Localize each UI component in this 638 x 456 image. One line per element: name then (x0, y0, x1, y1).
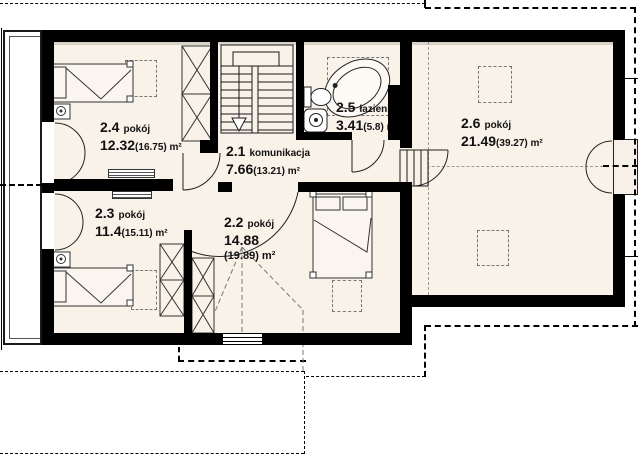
wall-between-24-23 (54, 179, 173, 191)
door-room24 (183, 153, 220, 190)
wardrobe-room24 (182, 46, 212, 141)
room-label-2-4: 2.4pokój 12.32(16.75) m² (100, 119, 182, 155)
bed-room23 (43, 265, 133, 306)
room-area: 21.49 (461, 133, 496, 149)
sink-drain-icon (315, 119, 318, 122)
room-area-line: 14.88(19.89) m² (224, 232, 275, 262)
wall-left-lower (42, 249, 54, 345)
room-name: pokój (247, 219, 274, 230)
balcony-door-room23-leaf1 (55, 194, 83, 222)
pillow-left (316, 197, 340, 210)
wall-bottom-west (42, 333, 222, 345)
wardrobe-room22 (192, 258, 214, 333)
room-title-line: 2.4pokój (100, 119, 182, 137)
balcony-door-room26-leaf1 (586, 141, 612, 167)
floor-plan: 2.1komunikacja 7.66(13.21) m² 2.2pokój 1… (0, 0, 638, 456)
room-number: 2.2 (224, 214, 243, 230)
room-area-note: (16.75) m² (135, 142, 182, 153)
wardrobe-room23 (160, 244, 184, 316)
wall-top (42, 30, 625, 42)
wall-room26-right-lower (613, 194, 625, 307)
room-number: 2.3 (95, 205, 114, 221)
bed-room24 (43, 61, 133, 102)
room-name: komunikacja (249, 148, 310, 159)
room-area-line: 11.4(15.11) m² (95, 223, 168, 241)
room-area: 12.32 (100, 137, 135, 153)
nightstand-room24 (52, 104, 70, 119)
room-number: 2.5 (336, 99, 355, 115)
window-bottom-wall (222, 333, 263, 345)
toilet (304, 87, 331, 107)
wall-bottom-east (263, 333, 412, 345)
room-area-line: 21.49(39.27) m² (461, 133, 543, 151)
room-name: pokój (484, 120, 511, 131)
sink (304, 109, 327, 132)
room-number: 2.6 (461, 115, 480, 131)
pillow-right (343, 197, 367, 210)
room-area-note: (39.27) m² (496, 138, 543, 149)
room-area-note: (15.11) m² (121, 228, 167, 239)
wall-left-middle (42, 183, 54, 193)
wall-room22-north-east (298, 182, 412, 192)
nightstand-room23 (52, 252, 70, 267)
room-title-line: 2.1komunikacja (226, 143, 310, 161)
room-name: pokój (118, 210, 145, 221)
bed-room22-double (310, 191, 372, 278)
wall-room26-right-upper (613, 30, 625, 140)
room-title-line: 2.3pokój (95, 205, 168, 223)
wall-stub-stair (200, 140, 218, 153)
wall-main-right-lower (400, 186, 412, 333)
door-bathroom (352, 140, 384, 172)
wall-stair-east (296, 42, 304, 132)
steps-to-room26 (400, 150, 428, 186)
room-label-2-2: 2.2pokój 14.88(19.89) m² (224, 214, 275, 262)
room-number: 2.1 (226, 143, 245, 159)
room-title-line: 2.6pokój (461, 115, 543, 133)
wall-left-upper (42, 30, 54, 122)
wall-bath-south (296, 132, 352, 140)
balcony-door-room24-leaf1 (55, 123, 85, 153)
room-area: 7.66 (226, 161, 253, 177)
room-name: pokój (123, 124, 150, 135)
room-area: 11.4 (95, 223, 121, 239)
room-number: 2.4 (100, 119, 119, 135)
room-area: 14.88 (224, 232, 259, 248)
room-label-2-6: 2.6pokój 21.49(39.27) m² (461, 115, 543, 151)
room-area-line: 12.32(16.75) m² (100, 137, 182, 155)
balcony-door-room23-leaf2 (55, 222, 83, 250)
room-area: 3.41 (336, 117, 363, 133)
staircase (221, 45, 293, 133)
balcony-door-room26-leaf2 (586, 167, 612, 193)
wall-stair-west (210, 42, 218, 140)
room-area-note: (19.89) m² (224, 250, 275, 262)
room-area-line: 7.66(13.21) m² (226, 161, 310, 179)
room-label-2-3: 2.3pokój 11.4(15.11) m² (95, 205, 168, 241)
roof-peak-lines-room22 (206, 247, 303, 371)
room-area-note: (13.21) m² (253, 166, 300, 177)
wall-room23-east (184, 230, 192, 333)
wall-room22-north-west (218, 182, 232, 192)
wall-room26-bottom (400, 295, 625, 307)
room-title-line: 2.2pokój (224, 214, 275, 232)
wall-chimney-block (388, 85, 412, 140)
room-label-2-1: 2.1komunikacja 7.66(13.21) m² (226, 143, 310, 179)
